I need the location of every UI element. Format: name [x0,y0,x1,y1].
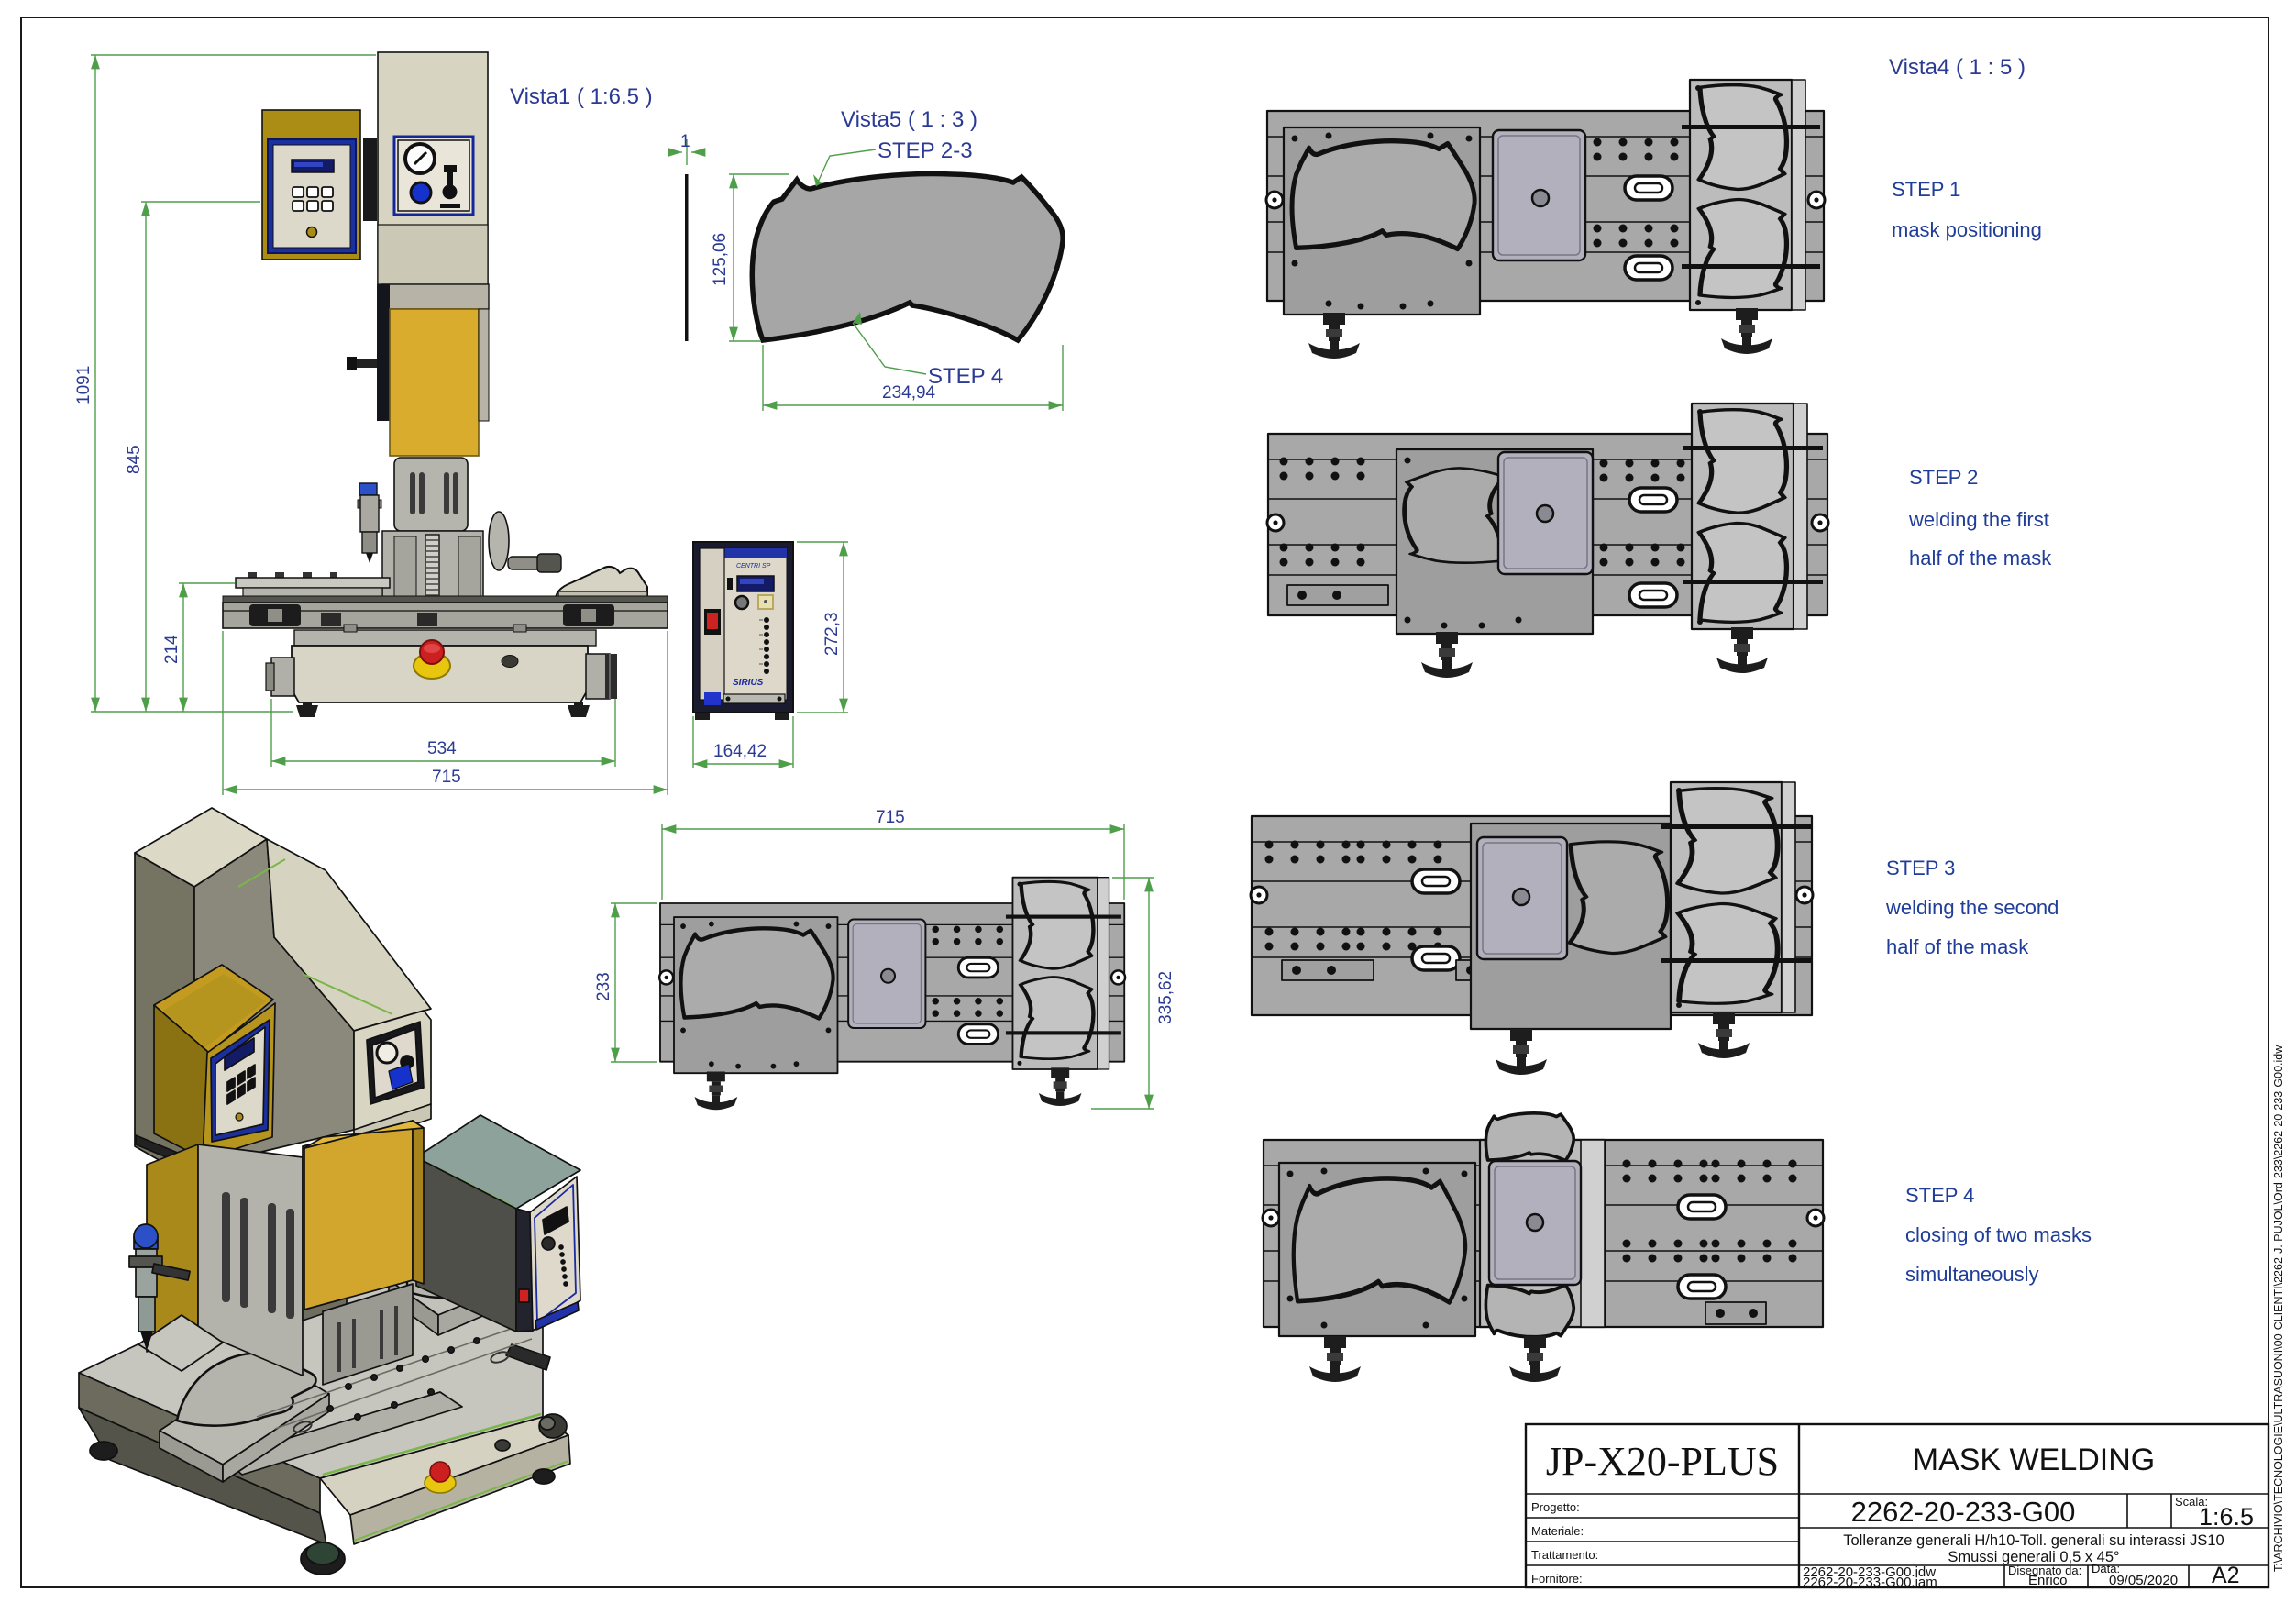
svg-text:Tolleranze generali H/h10-Toll: Tolleranze generali H/h10-Toll. generali… [1843,1532,2224,1549]
svg-text:STEP 2-3: STEP 2-3 [878,138,973,163]
svg-text:STEP 4: STEP 4 [928,364,1003,389]
svg-text:Vista5 ( 1 : 3 ): Vista5 ( 1 : 3 ) [841,107,977,132]
svg-text:2262-20-233-G00.iam: 2262-20-233-G00.iam [1803,1575,1937,1590]
svg-text:2262-20-233-G00: 2262-20-233-G00 [1851,1496,2076,1528]
svg-text:CENTRI SP: CENTRI SP [736,563,771,569]
svg-text:335,62: 335,62 [1156,971,1176,1024]
svg-text:welding the first: welding the first [1908,508,2049,531]
svg-text:1:6.5: 1:6.5 [2199,1503,2254,1531]
svg-text:half of the mask: half of the mask [1886,935,2029,958]
svg-text:233: 233 [594,972,613,1001]
svg-text:mask positioning: mask positioning [1892,218,2042,241]
svg-text:Enrico: Enrico [2028,1573,2068,1588]
svg-text:welding the second: welding the second [1885,896,2059,919]
svg-text:T:\ARCHIVIO\TECNOLOGIE\ULTRASU: T:\ARCHIVIO\TECNOLOGIE\ULTRASUONI\00-CLI… [2272,1045,2285,1572]
svg-text:STEP 4: STEP 4 [1905,1184,1974,1207]
svg-text:JP-X20-PLUS: JP-X20-PLUS [1546,1439,1779,1484]
svg-text:Materiale:: Materiale: [1531,1524,1584,1538]
svg-text:1091: 1091 [74,366,94,404]
svg-text:Trattamento:: Trattamento: [1531,1548,1598,1562]
svg-text:1: 1 [680,132,690,151]
svg-text:STEP 3: STEP 3 [1886,857,1955,879]
svg-text:214: 214 [162,635,182,664]
svg-text:Progetto:: Progetto: [1531,1500,1580,1514]
svg-text:Vista1 ( 1:6.5 ): Vista1 ( 1:6.5 ) [510,84,653,109]
svg-text:SIRIUS: SIRIUS [733,678,764,688]
svg-text:164,42: 164,42 [713,742,767,761]
svg-text:09/05/2020: 09/05/2020 [2109,1573,2178,1588]
svg-text:534: 534 [427,739,457,758]
svg-text:272,3: 272,3 [822,612,842,656]
svg-text:simultaneously: simultaneously [1905,1263,2039,1286]
svg-text:234,94: 234,94 [882,383,936,403]
svg-text:125,06: 125,06 [711,233,730,286]
svg-text:Fornitore:: Fornitore: [1531,1572,1583,1586]
svg-text:MASK WELDING: MASK WELDING [1913,1443,2155,1477]
svg-text:715: 715 [432,768,461,787]
svg-text:715: 715 [876,808,905,827]
svg-text:STEP 2: STEP 2 [1909,466,1978,489]
svg-text:A2: A2 [2212,1563,2240,1588]
svg-text:845: 845 [125,445,144,474]
svg-text:closing of two masks: closing of two masks [1905,1223,2092,1246]
svg-text:STEP 1: STEP 1 [1892,178,1960,201]
svg-text:Vista4 ( 1 : 5 ): Vista4 ( 1 : 5 ) [1889,55,2026,80]
svg-text:half of the mask: half of the mask [1909,547,2052,569]
